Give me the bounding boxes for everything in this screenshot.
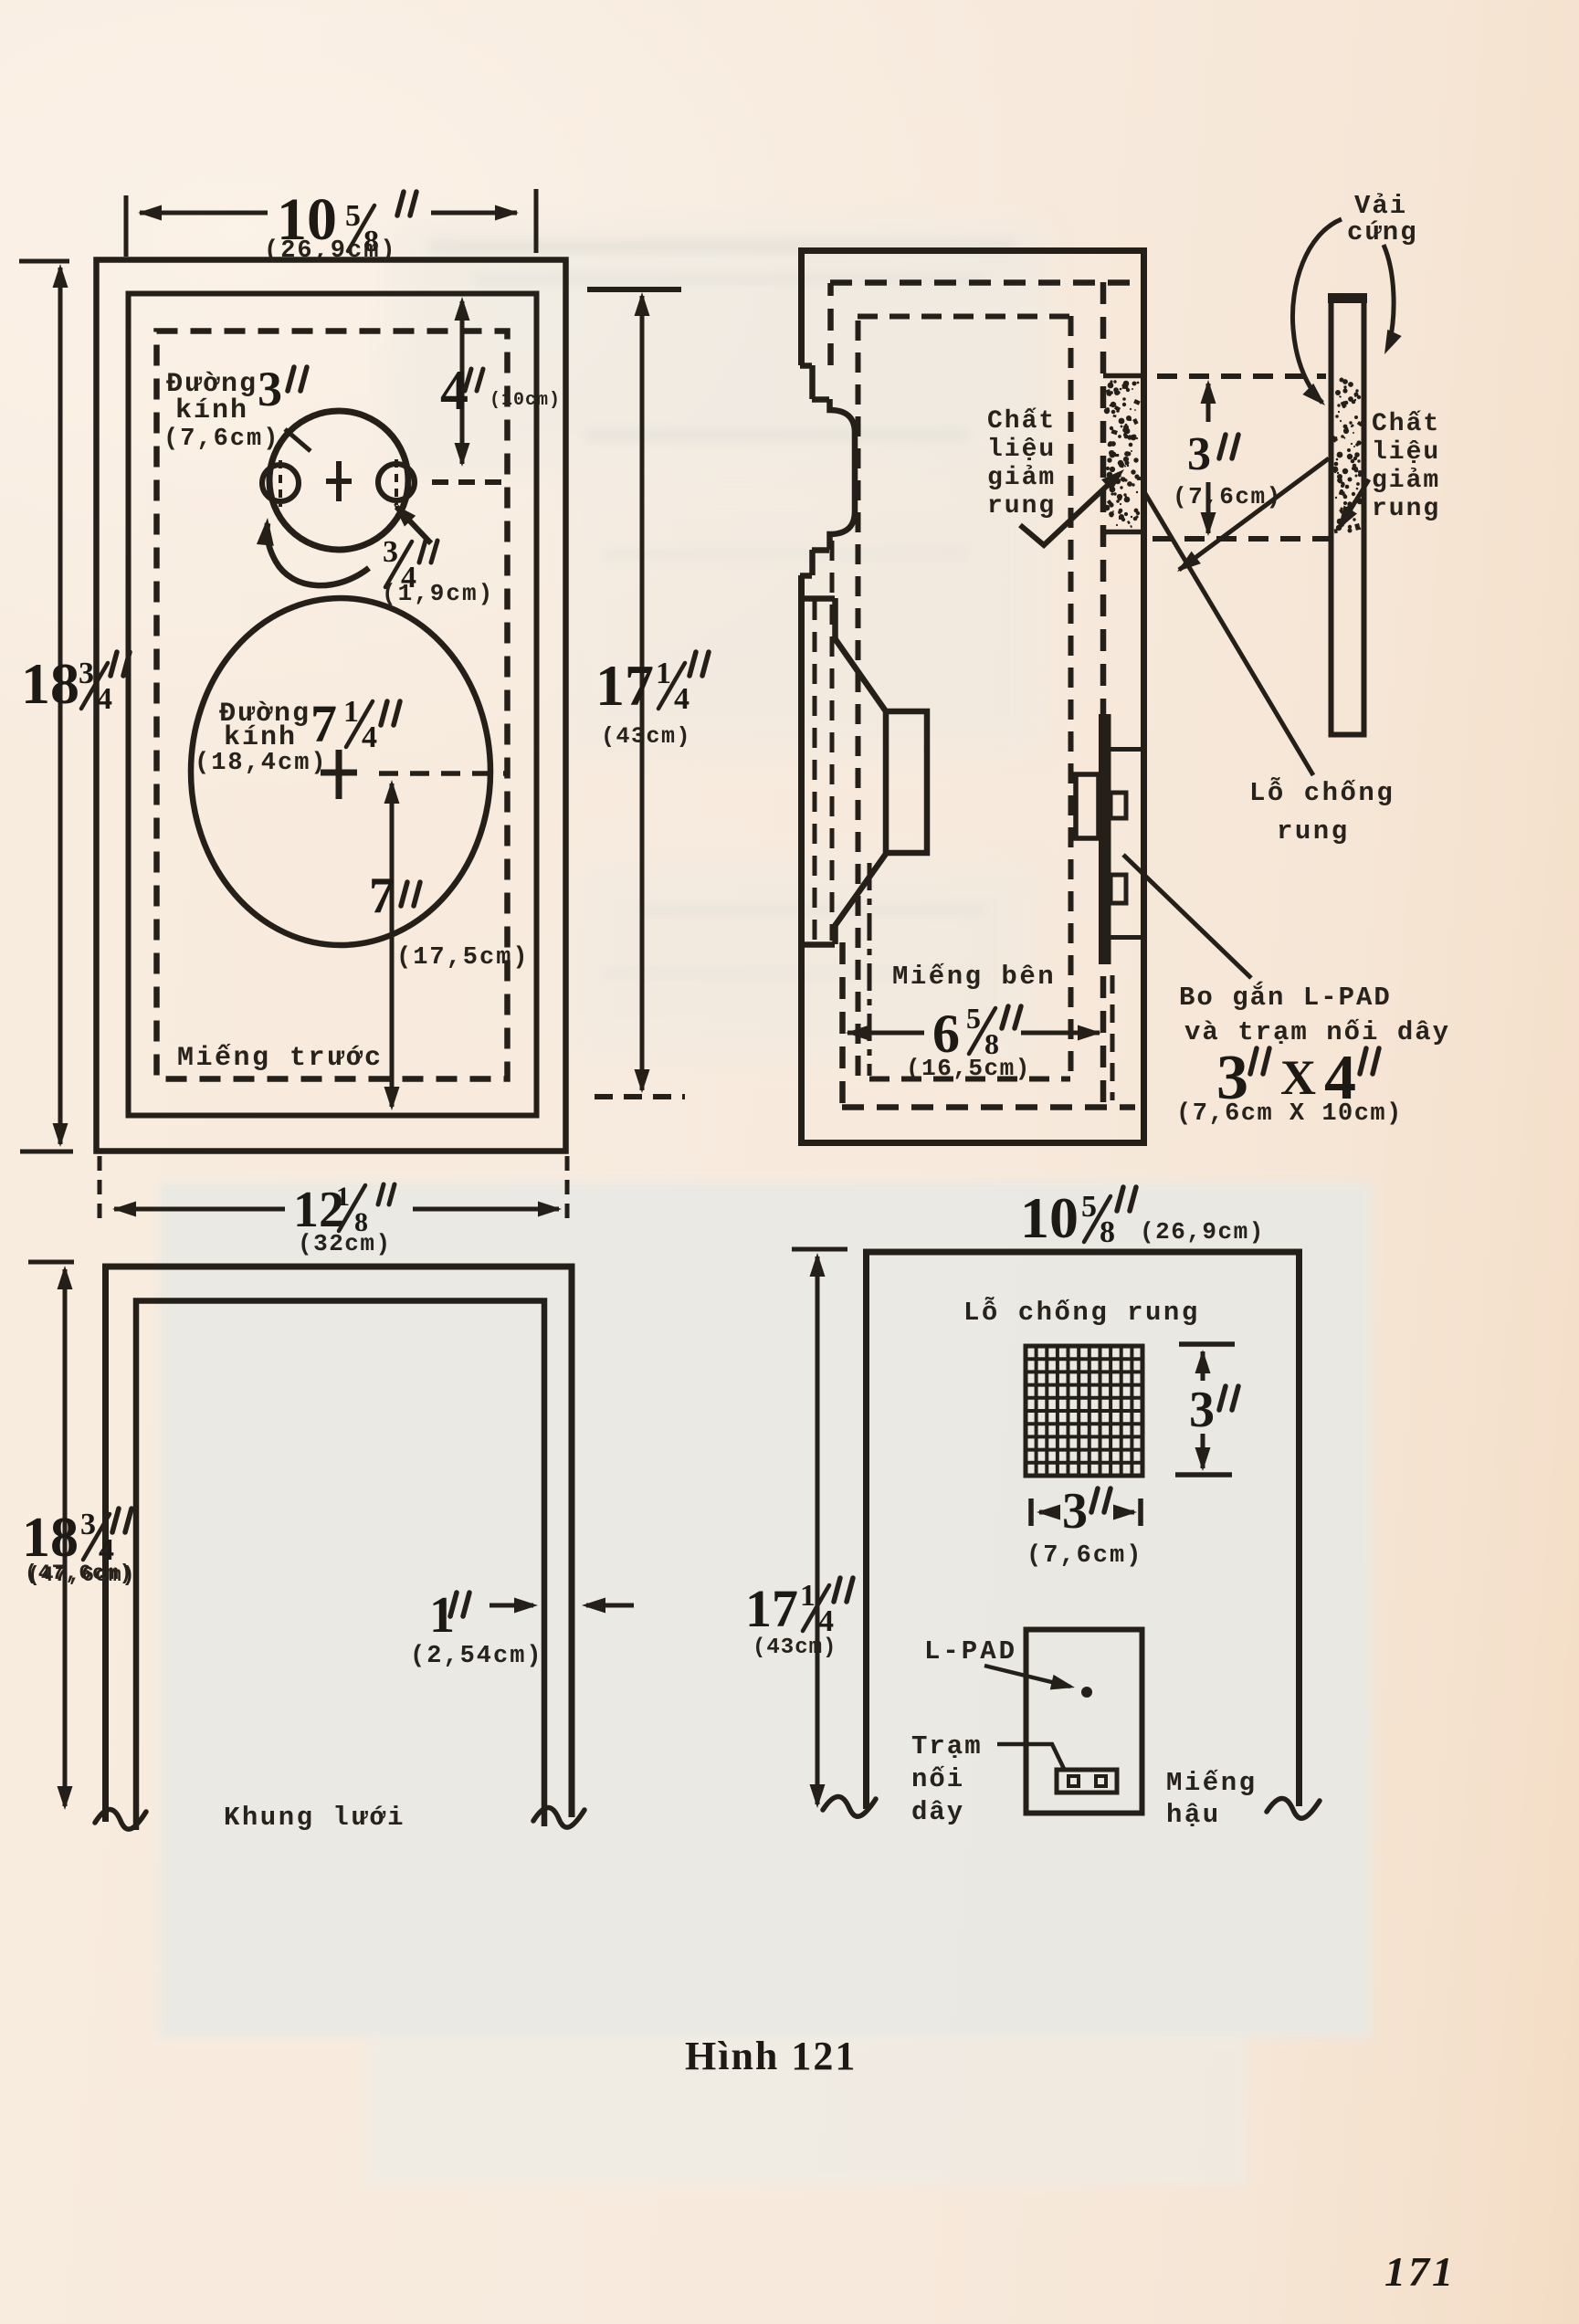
svg-text:4: 4 xyxy=(818,1604,834,1638)
svg-text:(7,6cm X 10cm): (7,6cm X 10cm) xyxy=(1176,1100,1403,1128)
svg-text:giảm: giảm xyxy=(1372,467,1440,495)
svg-text:4: 4 xyxy=(674,682,689,716)
svg-text:kính: kính xyxy=(224,722,297,753)
svg-text:7: 7 xyxy=(369,868,395,924)
svg-text:(18,4cm): (18,4cm) xyxy=(195,750,328,777)
svg-text:(43cm): (43cm) xyxy=(753,1635,837,1660)
svg-text:18: 18 xyxy=(21,651,79,716)
svg-text:3: 3 xyxy=(1062,1483,1088,1540)
svg-text:rung: rung xyxy=(987,492,1056,521)
svg-text:3: 3 xyxy=(1189,1382,1215,1438)
svg-text:10: 10 xyxy=(1020,1185,1079,1250)
svg-text:Miếng: Miếng xyxy=(1166,1768,1258,1798)
svg-text:nối: nối xyxy=(911,1764,964,1794)
svg-text:hậu: hậu xyxy=(1166,1800,1221,1830)
svg-text:Hình 121: Hình 121 xyxy=(685,2034,857,2078)
svg-text:rung: rung xyxy=(1277,816,1350,847)
svg-text:L-PAD: L-PAD xyxy=(924,1636,1017,1667)
svg-text:(17,5cm): (17,5cm) xyxy=(396,944,530,972)
svg-text:(32cm): (32cm) xyxy=(298,1230,392,1257)
svg-text:Miếng trước: Miếng trước xyxy=(177,1043,384,1074)
svg-text:5: 5 xyxy=(1081,1190,1097,1224)
svg-text:Khung lưới: Khung lưới xyxy=(224,1803,405,1833)
svg-text:(26,9cm): (26,9cm) xyxy=(1140,1218,1265,1246)
svg-text:171: 171 xyxy=(1384,2248,1456,2295)
svg-text:18: 18 xyxy=(22,1507,79,1569)
svg-text:(7,6cm): (7,6cm) xyxy=(1026,1542,1142,1570)
svg-text:1: 1 xyxy=(656,657,671,690)
svg-text:3: 3 xyxy=(258,362,282,416)
svg-text:1: 1 xyxy=(336,1182,350,1212)
svg-text:Miếng bên: Miếng bên xyxy=(892,962,1056,992)
svg-text:(10cm): (10cm) xyxy=(489,390,561,411)
svg-text:Chất: Chất xyxy=(1372,410,1440,438)
svg-text:7: 7 xyxy=(311,694,337,753)
svg-text:cứng: cứng xyxy=(1347,217,1418,247)
svg-text:(47,6cm): (47,6cm) xyxy=(27,1563,135,1587)
svg-text:Trạm: Trạm xyxy=(911,1731,983,1761)
svg-text:Chất: Chất xyxy=(987,407,1056,436)
svg-text:5: 5 xyxy=(345,199,361,233)
svg-text:Lỗ chống rung: Lỗ chống rung xyxy=(963,1296,1200,1328)
svg-text:17: 17 xyxy=(745,1579,798,1638)
svg-text:4: 4 xyxy=(97,682,112,716)
svg-text:liệu: liệu xyxy=(1372,438,1440,467)
svg-text:rung: rung xyxy=(1372,495,1440,523)
svg-text:giảm: giảm xyxy=(987,464,1056,492)
svg-text:1: 1 xyxy=(343,695,359,729)
svg-text:(26,9cm): (26,9cm) xyxy=(264,237,397,265)
svg-text:4: 4 xyxy=(99,1533,114,1567)
svg-text:8: 8 xyxy=(1100,1215,1115,1249)
svg-text:1: 1 xyxy=(800,1579,816,1613)
svg-text:Bo gắn L-PAD: Bo gắn L-PAD xyxy=(1179,981,1392,1013)
svg-text:(7,6cm): (7,6cm) xyxy=(163,426,279,453)
svg-text:3: 3 xyxy=(383,535,398,569)
svg-text:liệu: liệu xyxy=(987,436,1056,464)
svg-text:kính: kính xyxy=(175,395,248,426)
svg-text:X: X xyxy=(1280,1050,1316,1105)
svg-text:(16,5cm): (16,5cm) xyxy=(906,1055,1031,1082)
svg-text:(1,9cm): (1,9cm) xyxy=(382,580,494,607)
svg-text:3: 3 xyxy=(1187,428,1211,480)
svg-text:3: 3 xyxy=(80,1508,96,1541)
svg-text:3: 3 xyxy=(79,657,94,690)
svg-text:(43cm): (43cm) xyxy=(601,723,691,750)
svg-text:Lỗ chống: Lỗ chống xyxy=(1249,776,1395,808)
svg-text:4: 4 xyxy=(362,720,377,754)
svg-text:17: 17 xyxy=(595,653,654,718)
svg-text:(2,54cm): (2,54cm) xyxy=(410,1643,543,1670)
svg-text:dây: dây xyxy=(911,1797,964,1827)
svg-text:5: 5 xyxy=(966,1002,981,1035)
